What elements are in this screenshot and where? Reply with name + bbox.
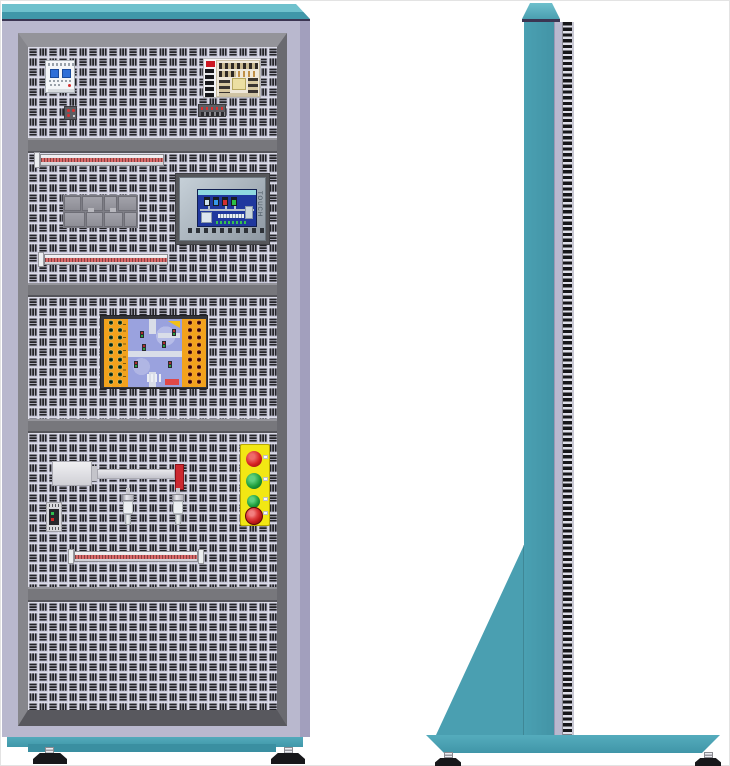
terminal-strip — [34, 152, 164, 168]
side-support-gusset — [436, 545, 524, 735]
cabinet-side-shading — [300, 21, 310, 737]
leveling-foot — [435, 758, 461, 766]
hmi-screen — [197, 189, 257, 227]
cap-separator-line — [2, 19, 310, 21]
psu-terminals — [205, 69, 214, 97]
output-socket-strip — [182, 319, 206, 387]
hmi-touch-label: TOUCH — [256, 191, 262, 217]
side-edge-highlight — [572, 22, 574, 736]
cabinet-front-view: TOUCH — [0, 0, 330, 766]
cabinet-base-recess — [28, 744, 276, 752]
side-mounting-slots — [562, 22, 572, 736]
panel-divider — [28, 138, 277, 153]
actuator-end-flag — [175, 464, 184, 490]
side-base-plate — [426, 735, 720, 753]
side-top-cap — [522, 3, 560, 19]
actuator-rod — [97, 469, 175, 479]
leveling-foot — [695, 758, 721, 766]
din-terminal-block — [198, 104, 226, 117]
din-terminal-block — [64, 106, 77, 120]
cap-dark-band — [2, 12, 310, 19]
equipment-drawing: TOUCH — [0, 0, 730, 766]
push-button-station — [240, 444, 270, 526]
cabinet-top-cap — [2, 4, 310, 19]
red-push-button — [246, 451, 262, 467]
green-push-button — [246, 473, 262, 489]
hmi-touch-panel: TOUCH — [175, 173, 270, 245]
side-frame-strip — [554, 22, 562, 736]
proximity-sensor — [172, 488, 184, 528]
linear-actuator-body — [52, 461, 92, 486]
perforated-panel-5 — [28, 602, 277, 710]
relay-module-group — [63, 195, 138, 228]
traffic-simulation-pcb — [128, 319, 182, 387]
switching-power-supply — [203, 58, 261, 98]
proximity-sensor — [122, 488, 134, 528]
sensor-module — [46, 502, 62, 532]
panel-divider — [28, 283, 277, 297]
terminal-strip — [68, 549, 204, 564]
circuit-breaker — [45, 60, 75, 93]
psu-logo — [206, 61, 215, 67]
panel-divider — [28, 587, 277, 602]
side-column-seam — [523, 545, 524, 735]
leveling-foot-stem — [45, 747, 54, 754]
leveling-foot-stem — [284, 747, 293, 754]
hmi-bezel: TOUCH — [179, 177, 266, 241]
cap-light-band — [2, 4, 310, 12]
leveling-foot — [271, 753, 305, 764]
emergency-stop-button — [245, 507, 263, 525]
cabinet-side-view — [400, 0, 730, 766]
side-column — [524, 22, 554, 736]
io-training-board — [100, 315, 208, 389]
psu-circuit-board — [216, 60, 260, 97]
hmi-function-keys — [188, 228, 267, 233]
terminal-strip — [38, 252, 168, 267]
leveling-foot-stem — [444, 752, 453, 758]
panel-divider — [28, 419, 277, 433]
leveling-foot — [33, 753, 67, 764]
board-label — [165, 379, 179, 385]
leveling-foot-stem — [704, 752, 713, 758]
